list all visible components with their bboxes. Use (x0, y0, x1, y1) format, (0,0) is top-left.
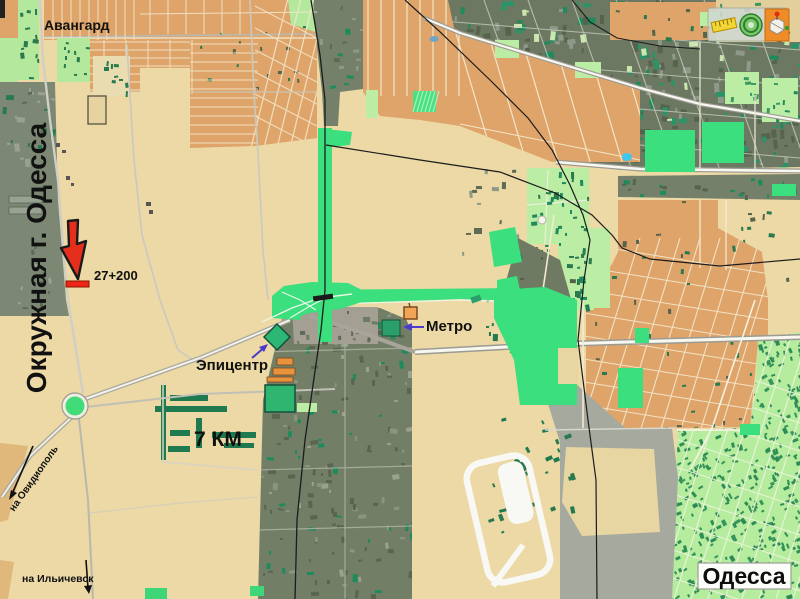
svg-text:27+200: 27+200 (94, 268, 138, 283)
svg-text:на Ильичевск: на Ильичевск (22, 573, 94, 585)
svg-text:Одесса: Одесса (702, 563, 785, 589)
svg-text:Эпицентр: Эпицентр (196, 357, 268, 374)
svg-text:7 КМ: 7 КМ (194, 428, 242, 451)
svg-text:Метро: Метро (426, 318, 472, 335)
svg-text:Окружная г. Одесса: Окружная г. Одесса (21, 122, 52, 393)
svg-text:Авангард: Авангард (44, 17, 110, 33)
